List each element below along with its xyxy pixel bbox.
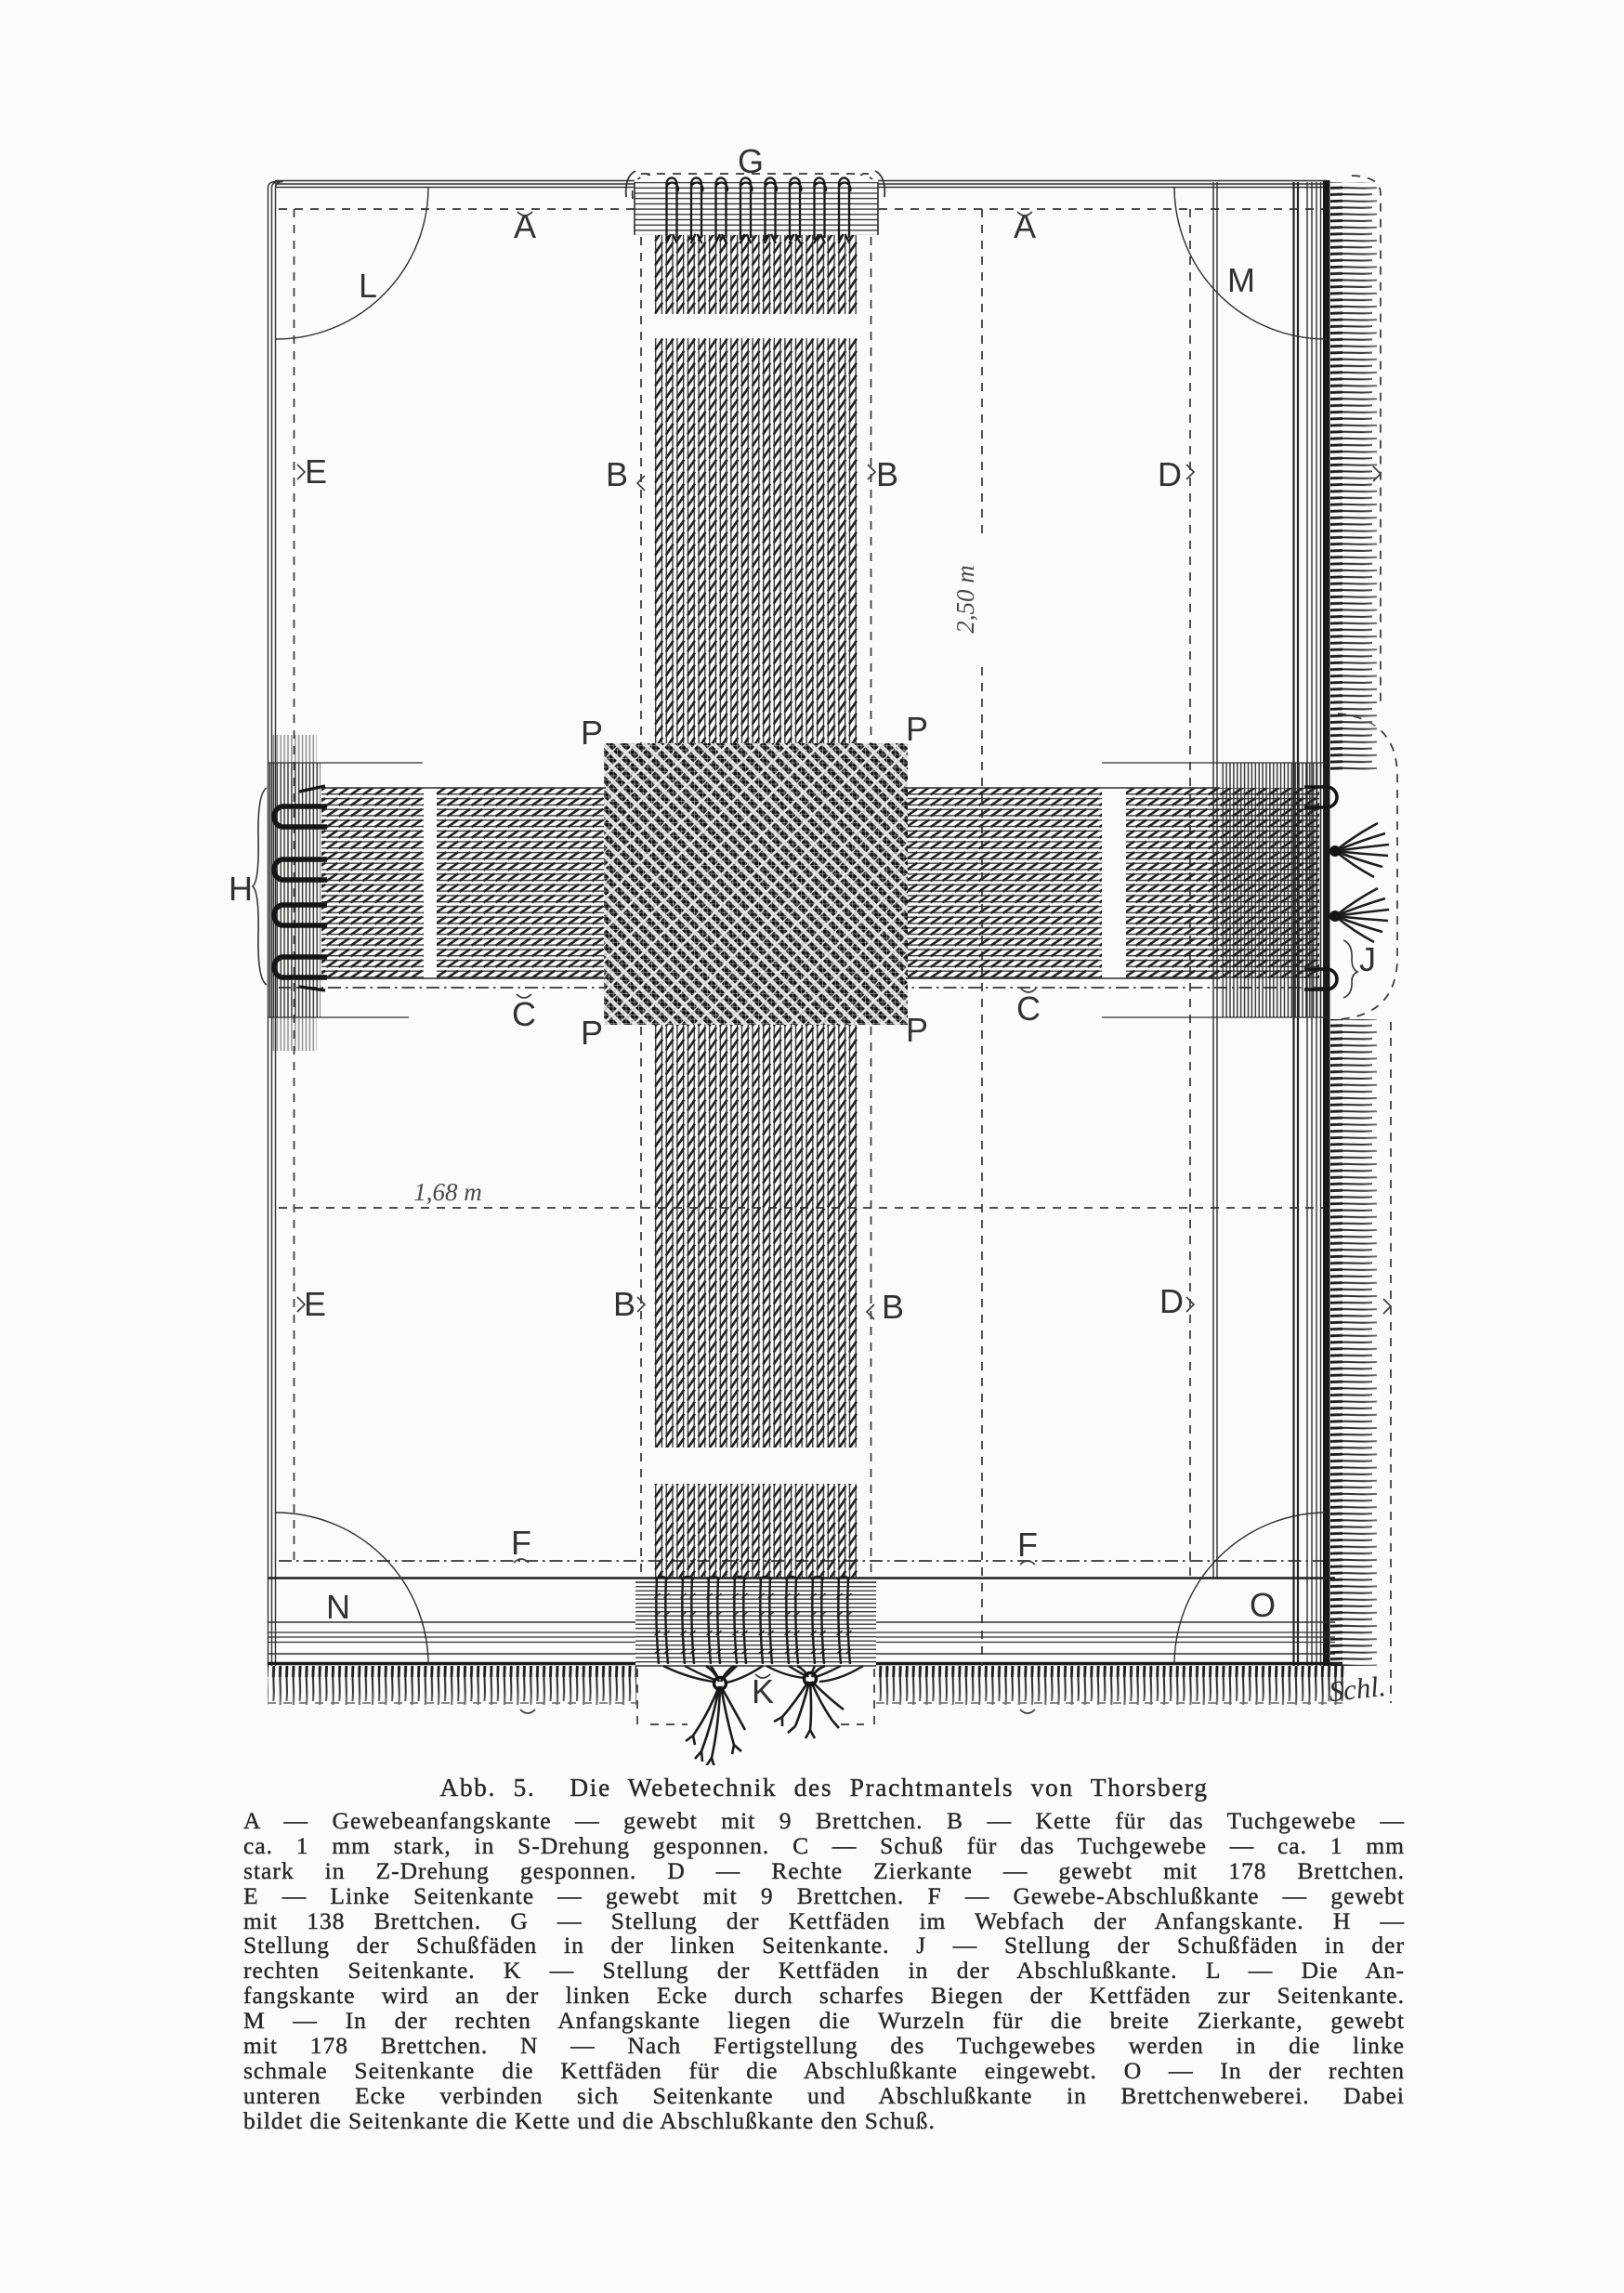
svg-text:J: J xyxy=(1359,940,1376,978)
svg-text:M: M xyxy=(1227,261,1255,299)
svg-text:D: D xyxy=(1159,1282,1184,1320)
svg-text:C: C xyxy=(1016,989,1041,1028)
svg-text:A: A xyxy=(1014,207,1036,245)
svg-text:D: D xyxy=(1158,455,1182,493)
svg-text:N: N xyxy=(326,1588,350,1626)
svg-text:B: B xyxy=(606,455,628,493)
svg-text:F: F xyxy=(1017,1526,1038,1564)
svg-text:L: L xyxy=(359,267,377,305)
svg-text:E: E xyxy=(305,452,327,491)
svg-text:2,50 m: 2,50 m xyxy=(951,565,979,634)
svg-text:E: E xyxy=(304,1285,326,1323)
svg-text:O: O xyxy=(1250,1586,1276,1624)
svg-text:Schl.: Schl. xyxy=(1328,1670,1387,1708)
svg-text:B: B xyxy=(613,1285,635,1323)
svg-text:A: A xyxy=(514,207,536,245)
svg-text:P: P xyxy=(906,1011,928,1049)
svg-text:H: H xyxy=(229,870,253,908)
svg-text:B: B xyxy=(876,455,898,493)
svg-text:P: P xyxy=(581,714,603,752)
svg-text:1,68 m: 1,68 m xyxy=(413,1178,482,1206)
svg-text:F: F xyxy=(511,1524,531,1562)
svg-text:P: P xyxy=(581,1014,603,1052)
svg-text:P: P xyxy=(906,710,928,748)
svg-text:G: G xyxy=(738,142,764,180)
svg-text:B: B xyxy=(882,1288,904,1326)
svg-text:C: C xyxy=(512,995,536,1033)
